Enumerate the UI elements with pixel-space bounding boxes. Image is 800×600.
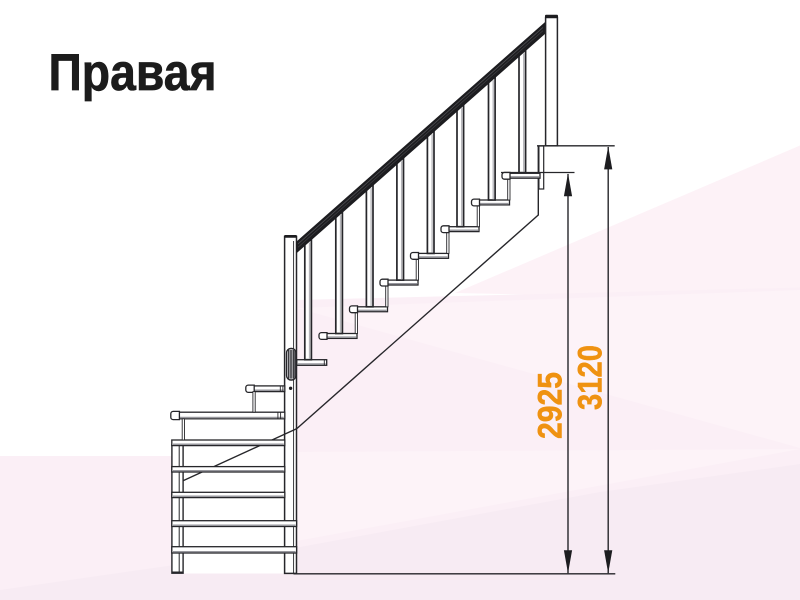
svg-text:2925: 2925: [532, 372, 570, 439]
svg-text:Правая: Правая: [49, 44, 217, 102]
svg-text:3120: 3120: [572, 345, 610, 410]
